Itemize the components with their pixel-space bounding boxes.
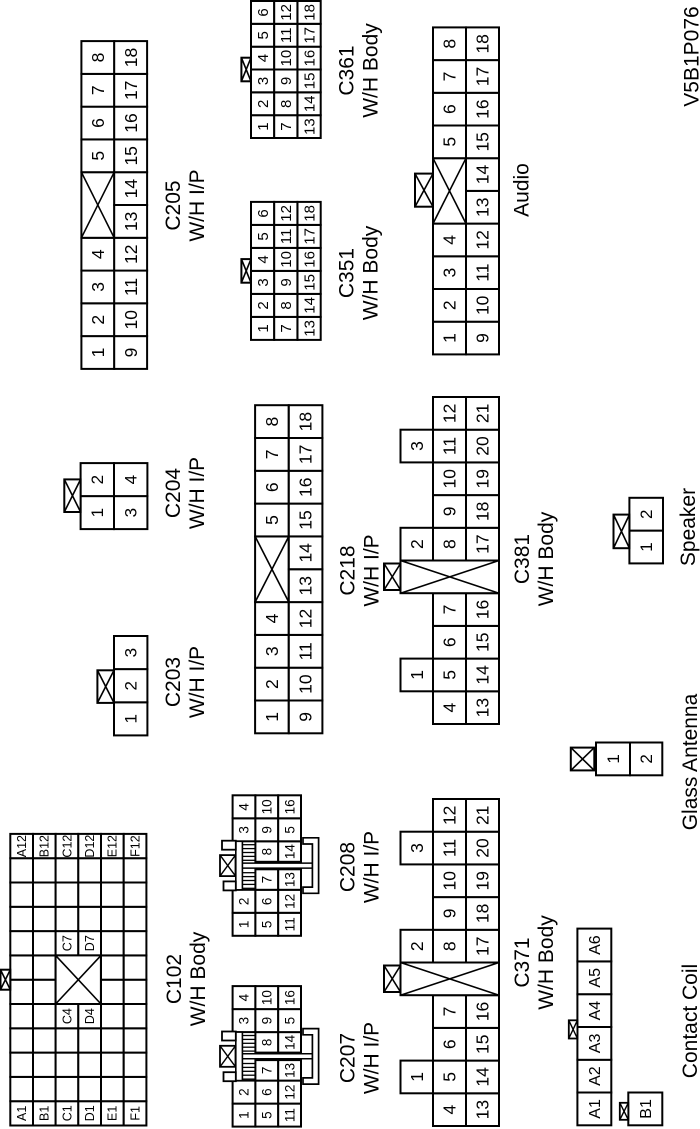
svg-text:8: 8: [260, 848, 275, 856]
svg-text:6: 6: [88, 118, 108, 128]
svg-text:3: 3: [407, 441, 427, 451]
svg-text:21: 21: [473, 404, 493, 423]
svg-text:1: 1: [255, 122, 272, 130]
svg-text:2: 2: [407, 539, 427, 549]
svg-text:12: 12: [282, 894, 297, 909]
svg-text:C12: C12: [60, 835, 74, 858]
svg-text:10: 10: [278, 50, 295, 67]
svg-text:8: 8: [440, 39, 460, 49]
svg-text:7: 7: [260, 876, 275, 884]
svg-text:10: 10: [440, 469, 460, 489]
svg-text:5: 5: [255, 31, 272, 39]
svg-text:W/H I/P: W/H I/P: [361, 534, 384, 606]
svg-text:17: 17: [121, 81, 141, 100]
svg-text:11: 11: [282, 917, 297, 931]
svg-text:4: 4: [122, 475, 141, 484]
svg-text:7: 7: [262, 450, 282, 460]
svg-text:1: 1: [88, 508, 107, 517]
svg-text:10: 10: [260, 799, 275, 814]
svg-text:2: 2: [122, 681, 141, 690]
svg-text:14: 14: [296, 543, 316, 563]
svg-text:11: 11: [473, 264, 493, 282]
svg-text:C381: C381: [511, 534, 534, 584]
svg-text:12: 12: [278, 4, 295, 21]
svg-text:W/H I/P: W/H I/P: [186, 646, 209, 718]
svg-text:18: 18: [473, 34, 493, 53]
svg-text:1: 1: [604, 754, 623, 763]
svg-text:16: 16: [282, 990, 297, 1005]
svg-text:17: 17: [296, 445, 316, 464]
svg-text:12: 12: [121, 244, 141, 263]
svg-text:2: 2: [407, 941, 427, 951]
svg-text:4: 4: [440, 702, 460, 712]
svg-text:8: 8: [278, 100, 295, 108]
svg-text:F12: F12: [128, 835, 142, 857]
svg-text:B12: B12: [38, 835, 52, 857]
svg-text:6: 6: [255, 8, 272, 16]
svg-text:7: 7: [440, 1007, 460, 1017]
svg-text:10: 10: [473, 295, 493, 315]
svg-text:2: 2: [88, 475, 107, 484]
svg-text:7: 7: [88, 85, 108, 95]
svg-text:2: 2: [262, 679, 282, 689]
svg-text:4: 4: [440, 1104, 460, 1114]
svg-text:18: 18: [301, 205, 318, 222]
svg-text:6: 6: [440, 104, 460, 114]
svg-text:6: 6: [260, 898, 275, 906]
svg-text:W/H I/P: W/H I/P: [186, 169, 209, 241]
svg-text:18: 18: [301, 4, 318, 21]
svg-text:A5: A5: [587, 968, 604, 988]
svg-text:V5B1P076: V5B1P076: [681, 6, 700, 106]
svg-text:15: 15: [296, 510, 316, 529]
svg-text:15: 15: [473, 1034, 493, 1053]
svg-text:13: 13: [473, 1100, 493, 1119]
svg-text:13: 13: [121, 212, 141, 231]
svg-text:D1: D1: [83, 1105, 97, 1121]
svg-text:9: 9: [440, 909, 460, 919]
svg-text:13: 13: [473, 698, 493, 717]
svg-text:8: 8: [88, 53, 108, 63]
svg-text:5: 5: [440, 137, 460, 147]
svg-text:7: 7: [278, 122, 295, 130]
svg-text:A1: A1: [15, 1106, 29, 1121]
svg-text:9: 9: [278, 77, 295, 85]
svg-text:7: 7: [440, 72, 460, 82]
svg-text:A1: A1: [587, 1099, 604, 1119]
svg-text:16: 16: [282, 799, 297, 814]
svg-text:4: 4: [262, 613, 282, 623]
svg-text:1: 1: [237, 921, 252, 929]
svg-text:10: 10: [440, 871, 460, 891]
svg-text:C205: C205: [162, 180, 185, 230]
svg-text:2: 2: [255, 301, 272, 309]
svg-text:9: 9: [260, 826, 275, 834]
svg-text:13: 13: [282, 872, 297, 887]
svg-text:E12: E12: [106, 835, 120, 857]
svg-text:10: 10: [260, 990, 275, 1005]
svg-text:C208: C208: [337, 842, 360, 892]
svg-text:12: 12: [296, 609, 316, 628]
svg-text:13: 13: [282, 1063, 297, 1078]
svg-text:19: 19: [473, 469, 493, 488]
svg-text:1: 1: [407, 1072, 427, 1082]
svg-text:1: 1: [440, 333, 460, 343]
svg-text:W/H Body: W/H Body: [360, 23, 383, 118]
svg-text:2: 2: [237, 898, 252, 906]
svg-text:14: 14: [282, 1034, 297, 1050]
svg-text:1: 1: [637, 542, 656, 551]
svg-text:5: 5: [255, 232, 272, 240]
svg-text:4: 4: [255, 54, 272, 62]
svg-text:C203: C203: [162, 657, 185, 707]
svg-text:2: 2: [440, 300, 460, 310]
svg-text:W/H Body: W/H Body: [535, 511, 558, 606]
svg-text:9: 9: [121, 348, 141, 358]
svg-text:15: 15: [121, 146, 141, 165]
svg-text:W/H Body: W/H Body: [535, 915, 558, 1010]
svg-text:5: 5: [260, 1111, 275, 1119]
svg-text:6: 6: [440, 1039, 460, 1049]
svg-text:Contact Coil: Contact Coil: [679, 964, 700, 1078]
svg-text:3: 3: [407, 843, 427, 853]
svg-text:16: 16: [473, 1002, 493, 1021]
svg-text:C7: C7: [60, 935, 74, 951]
svg-text:1: 1: [262, 712, 282, 722]
svg-text:A2: A2: [587, 1066, 604, 1086]
svg-text:C4: C4: [60, 1008, 74, 1024]
svg-text:W/H Body: W/H Body: [360, 225, 383, 320]
svg-text:16: 16: [301, 251, 318, 268]
svg-text:7: 7: [440, 605, 460, 615]
svg-text:C371: C371: [511, 937, 534, 987]
svg-text:W/H Body: W/H Body: [187, 931, 210, 1026]
svg-text:W/H I/P: W/H I/P: [186, 457, 209, 529]
svg-text:18: 18: [473, 904, 493, 923]
svg-text:9: 9: [473, 333, 493, 343]
svg-text:8: 8: [440, 539, 460, 549]
svg-text:9: 9: [278, 278, 295, 286]
svg-text:D7: D7: [83, 935, 97, 951]
svg-text:2: 2: [88, 315, 108, 325]
svg-text:1: 1: [255, 324, 272, 332]
svg-text:14: 14: [301, 95, 318, 112]
svg-text:14: 14: [473, 1067, 493, 1087]
svg-text:3: 3: [262, 646, 282, 656]
svg-text:2: 2: [637, 754, 656, 763]
svg-text:1: 1: [122, 714, 141, 723]
svg-text:11: 11: [121, 278, 141, 296]
svg-text:11: 11: [440, 437, 460, 455]
svg-text:4: 4: [237, 803, 252, 811]
svg-text:1: 1: [88, 348, 108, 358]
svg-text:3: 3: [255, 278, 272, 286]
svg-text:10: 10: [121, 310, 141, 330]
svg-text:3: 3: [440, 268, 460, 278]
svg-text:8: 8: [440, 941, 460, 951]
svg-text:12: 12: [278, 205, 295, 222]
svg-text:8: 8: [262, 417, 282, 427]
svg-text:9: 9: [440, 507, 460, 517]
svg-text:8: 8: [278, 301, 295, 309]
svg-text:11: 11: [296, 642, 316, 660]
svg-text:5: 5: [88, 151, 108, 161]
svg-text:7: 7: [278, 324, 295, 332]
svg-text:11: 11: [278, 229, 295, 245]
svg-text:11: 11: [440, 839, 460, 857]
svg-text:3: 3: [88, 282, 108, 292]
svg-text:17: 17: [301, 228, 318, 245]
svg-text:B1: B1: [38, 1106, 52, 1121]
svg-text:16: 16: [296, 477, 316, 496]
svg-text:1: 1: [407, 670, 427, 680]
svg-text:12: 12: [282, 1085, 297, 1100]
svg-text:D4: D4: [83, 1008, 97, 1024]
svg-text:14: 14: [282, 844, 297, 860]
svg-text:19: 19: [473, 871, 493, 890]
svg-text:13: 13: [301, 320, 318, 337]
svg-text:3: 3: [237, 1017, 252, 1025]
svg-text:4: 4: [255, 255, 272, 263]
svg-text:11: 11: [278, 28, 295, 44]
svg-text:C102: C102: [163, 954, 186, 1004]
svg-text:16: 16: [121, 113, 141, 132]
svg-text:13: 13: [473, 197, 493, 216]
svg-text:D12: D12: [83, 835, 97, 858]
svg-text:2: 2: [637, 509, 656, 518]
svg-text:4: 4: [237, 993, 252, 1001]
svg-text:16: 16: [473, 99, 493, 118]
svg-text:4: 4: [88, 249, 108, 259]
svg-text:W/H I/P: W/H I/P: [361, 1022, 384, 1094]
svg-text:7: 7: [260, 1067, 275, 1075]
svg-text:17: 17: [473, 936, 493, 955]
svg-text:A12: A12: [15, 835, 29, 857]
svg-text:9: 9: [260, 1017, 275, 1025]
svg-text:Glass Antenna: Glass Antenna: [679, 693, 700, 830]
svg-text:F1: F1: [128, 1106, 142, 1121]
svg-text:3: 3: [237, 826, 252, 834]
svg-text:10: 10: [278, 251, 295, 268]
svg-text:16: 16: [301, 50, 318, 67]
svg-text:B1: B1: [638, 1099, 655, 1119]
svg-text:A4: A4: [587, 1001, 604, 1021]
svg-text:17: 17: [473, 534, 493, 553]
svg-text:Speaker: Speaker: [677, 488, 700, 566]
svg-text:C218: C218: [337, 545, 360, 595]
svg-text:14: 14: [301, 297, 318, 314]
svg-text:2: 2: [255, 100, 272, 108]
svg-text:13: 13: [301, 118, 318, 135]
svg-text:16: 16: [473, 600, 493, 619]
svg-text:14: 14: [473, 665, 493, 685]
svg-text:Audio: Audio: [511, 163, 534, 217]
svg-text:12: 12: [440, 806, 460, 825]
svg-text:5: 5: [260, 921, 275, 929]
svg-text:18: 18: [121, 48, 141, 67]
svg-text:5: 5: [440, 1072, 460, 1082]
svg-text:6: 6: [262, 482, 282, 492]
svg-text:5: 5: [440, 670, 460, 680]
svg-text:20: 20: [473, 838, 493, 858]
svg-text:17: 17: [473, 67, 493, 86]
svg-text:12: 12: [473, 230, 493, 249]
svg-text:5: 5: [282, 1017, 297, 1025]
svg-text:18: 18: [473, 502, 493, 521]
svg-text:C1: C1: [60, 1105, 74, 1121]
svg-text:15: 15: [473, 632, 493, 651]
svg-text:15: 15: [301, 274, 318, 291]
svg-text:9: 9: [296, 712, 316, 722]
svg-text:14: 14: [473, 165, 493, 185]
svg-text:6: 6: [260, 1088, 275, 1096]
svg-text:C351: C351: [336, 248, 359, 298]
svg-text:13: 13: [296, 576, 316, 595]
svg-text:C207: C207: [337, 1033, 360, 1083]
svg-text:5: 5: [262, 515, 282, 525]
svg-text:6: 6: [440, 637, 460, 647]
svg-text:17: 17: [301, 27, 318, 44]
svg-text:E1: E1: [106, 1106, 120, 1121]
svg-text:10: 10: [296, 674, 316, 694]
svg-text:3: 3: [122, 508, 141, 517]
svg-text:C361: C361: [336, 45, 359, 95]
svg-text:A6: A6: [587, 935, 604, 955]
svg-text:A3: A3: [587, 1034, 604, 1054]
svg-text:3: 3: [255, 77, 272, 85]
svg-text:4: 4: [440, 235, 460, 245]
svg-text:5: 5: [282, 826, 297, 834]
svg-text:3: 3: [122, 648, 141, 657]
svg-text:15: 15: [301, 73, 318, 90]
svg-text:12: 12: [440, 404, 460, 423]
svg-text:2: 2: [237, 1088, 252, 1096]
svg-text:18: 18: [296, 412, 316, 431]
svg-text:11: 11: [282, 1108, 297, 1122]
svg-text:W/H I/P: W/H I/P: [361, 831, 384, 903]
svg-text:20: 20: [473, 436, 493, 456]
svg-text:8: 8: [260, 1039, 275, 1047]
svg-text:15: 15: [473, 132, 493, 151]
svg-text:6: 6: [255, 209, 272, 217]
svg-text:14: 14: [121, 179, 141, 199]
svg-text:C204: C204: [162, 468, 185, 519]
svg-text:21: 21: [473, 806, 493, 825]
svg-text:1: 1: [237, 1111, 252, 1119]
